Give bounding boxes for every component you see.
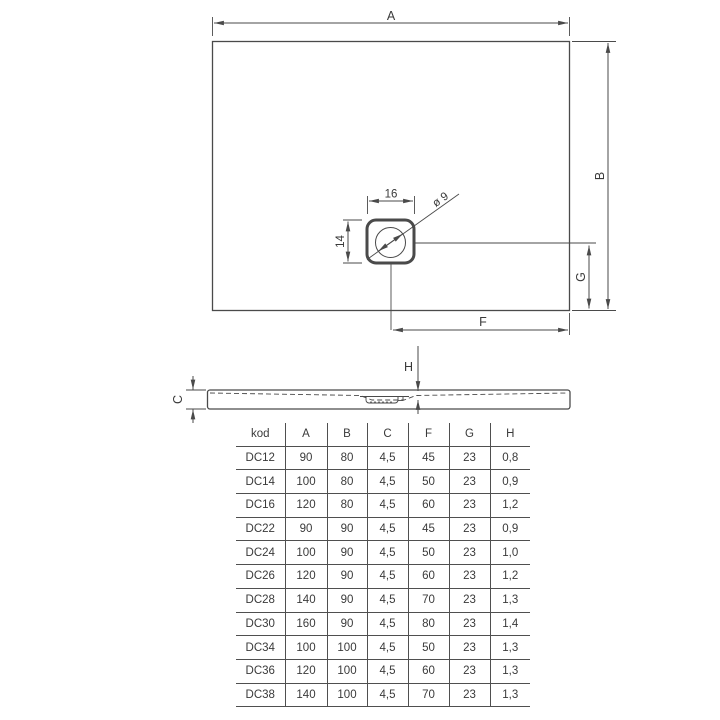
table-cell: 80 (327, 494, 367, 518)
table-cell: 23 (449, 659, 490, 683)
table-cell: 1,4 (490, 612, 530, 636)
dimension-label-f: F (479, 315, 487, 329)
dimension-h: H (404, 346, 418, 414)
table-cell: 120 (285, 659, 327, 683)
table-cell: DC26 (236, 565, 285, 589)
tray-profile-outline (208, 390, 571, 409)
table-cell: 50 (408, 636, 449, 660)
table-header-kod: kod (236, 423, 285, 446)
table-cell: DC28 (236, 588, 285, 612)
profile-view: H C (171, 346, 570, 423)
table-cell: 100 (285, 541, 327, 565)
dimension-f: F (393, 313, 570, 335)
table-cell: 4,5 (367, 588, 408, 612)
table-cell: 45 (408, 446, 449, 470)
table-cell: 0,8 (490, 446, 530, 470)
table-cell: DC34 (236, 636, 285, 660)
table-cell: 1,3 (490, 636, 530, 660)
technical-drawing-page: A B 16 (0, 0, 720, 720)
table-cell: 120 (285, 565, 327, 589)
dimension-label-h: H (404, 360, 413, 374)
table-cell: 23 (449, 588, 490, 612)
table-cell: 4,5 (367, 636, 408, 660)
dimensions-table: kod A B C F G H DC1290804,545230,8DC1410… (236, 423, 530, 707)
table-cell: 100 (285, 470, 327, 494)
table-cell: 80 (327, 470, 367, 494)
table-cell: 140 (285, 683, 327, 707)
dimension-label-14: 14 (335, 235, 347, 248)
table-header-h: H (490, 423, 530, 446)
table-row: DC361201004,560231,3 (236, 659, 530, 683)
table-cell: 1,2 (490, 565, 530, 589)
table-header-b: B (327, 423, 367, 446)
table-cell: 4,5 (367, 541, 408, 565)
dimension-a: A (213, 9, 570, 36)
table-header-row: kod A B C F G H (236, 423, 530, 446)
table-cell: 70 (408, 588, 449, 612)
table-cell: 0,9 (490, 470, 530, 494)
table-cell: 1,2 (490, 494, 530, 518)
table-cell: 90 (327, 612, 367, 636)
table-cell: 90 (285, 517, 327, 541)
table-body: DC1290804,545230,8DC14100804,550230,9DC1… (236, 446, 530, 707)
table-cell: DC12 (236, 446, 285, 470)
table-cell: DC36 (236, 659, 285, 683)
table-cell: 23 (449, 446, 490, 470)
table-cell: 23 (449, 470, 490, 494)
dimension-g: G (574, 246, 589, 309)
table-header-c: C (367, 423, 408, 446)
table-row: DC30160904,580231,4 (236, 612, 530, 636)
table-cell: 23 (449, 541, 490, 565)
table-cell: 90 (327, 541, 367, 565)
table-cell: 60 (408, 659, 449, 683)
table-row: DC16120804,560231,2 (236, 494, 530, 518)
table-cell: 60 (408, 494, 449, 518)
table-row: DC14100804,550230,9 (236, 470, 530, 494)
table-cell: 60 (408, 565, 449, 589)
table-cell: 4,5 (367, 470, 408, 494)
table-cell: 50 (408, 470, 449, 494)
table-cell: 23 (449, 683, 490, 707)
table-row: DC2290904,545230,9 (236, 517, 530, 541)
table-row: DC1290804,545230,8 (236, 446, 530, 470)
table-cell: 23 (449, 517, 490, 541)
dimension-label-c: C (171, 395, 185, 404)
table-cell: 23 (449, 494, 490, 518)
table-cell: 45 (408, 517, 449, 541)
dimension-c: C (171, 376, 206, 423)
table-cell: 1,3 (490, 659, 530, 683)
table-cell: 100 (327, 659, 367, 683)
table-cell: DC24 (236, 541, 285, 565)
table-cell: 90 (327, 565, 367, 589)
table-cell: 140 (285, 588, 327, 612)
table-cell: 50 (408, 541, 449, 565)
table-row: DC26120904,560231,2 (236, 565, 530, 589)
table-cell: 4,5 (367, 446, 408, 470)
table-row: DC341001004,550231,3 (236, 636, 530, 660)
dimension-label-b: B (593, 172, 607, 180)
table-cell: 100 (285, 636, 327, 660)
table-cell: DC22 (236, 517, 285, 541)
table-cell: 100 (327, 636, 367, 660)
table-header-f: F (408, 423, 449, 446)
dimension-label-diameter: ø 9 (431, 190, 452, 209)
table-cell: DC14 (236, 470, 285, 494)
table-cell: 90 (285, 446, 327, 470)
table-cell: DC38 (236, 683, 285, 707)
table-cell: DC16 (236, 494, 285, 518)
dimension-label-g: G (574, 272, 588, 282)
table-cell: 160 (285, 612, 327, 636)
table-cell: 4,5 (367, 612, 408, 636)
table-header-a: A (285, 423, 327, 446)
drain-square-outline (367, 220, 414, 263)
table-cell: 90 (327, 517, 367, 541)
table-row: DC28140904,570231,3 (236, 588, 530, 612)
table-cell: 1,0 (490, 541, 530, 565)
table-cell: 120 (285, 494, 327, 518)
dimension-b: B (572, 42, 616, 311)
table-cell: 4,5 (367, 659, 408, 683)
table-cell: 100 (327, 683, 367, 707)
table-header-g: G (449, 423, 490, 446)
table-cell: 4,5 (367, 683, 408, 707)
table-cell: 23 (449, 636, 490, 660)
table-cell: 1,3 (490, 683, 530, 707)
plan-view: A B 16 (213, 9, 617, 335)
table-cell: 80 (327, 446, 367, 470)
table-cell: 70 (408, 683, 449, 707)
table-cell: 4,5 (367, 494, 408, 518)
dimension-label-16: 16 (385, 189, 398, 201)
table-row: DC24100904,550231,0 (236, 541, 530, 565)
table-cell: 4,5 (367, 565, 408, 589)
table-cell: 80 (408, 612, 449, 636)
table-cell: DC30 (236, 612, 285, 636)
dimension-label-a: A (387, 9, 396, 23)
table-cell: 1,3 (490, 588, 530, 612)
drain-detail: 16 14 ø 9 (335, 189, 596, 331)
table-cell: 23 (449, 565, 490, 589)
table-cell: 90 (327, 588, 367, 612)
table-cell: 4,5 (367, 517, 408, 541)
table-cell: 0,9 (490, 517, 530, 541)
table-row: DC381401004,570231,3 (236, 683, 530, 707)
table-cell: 23 (449, 612, 490, 636)
